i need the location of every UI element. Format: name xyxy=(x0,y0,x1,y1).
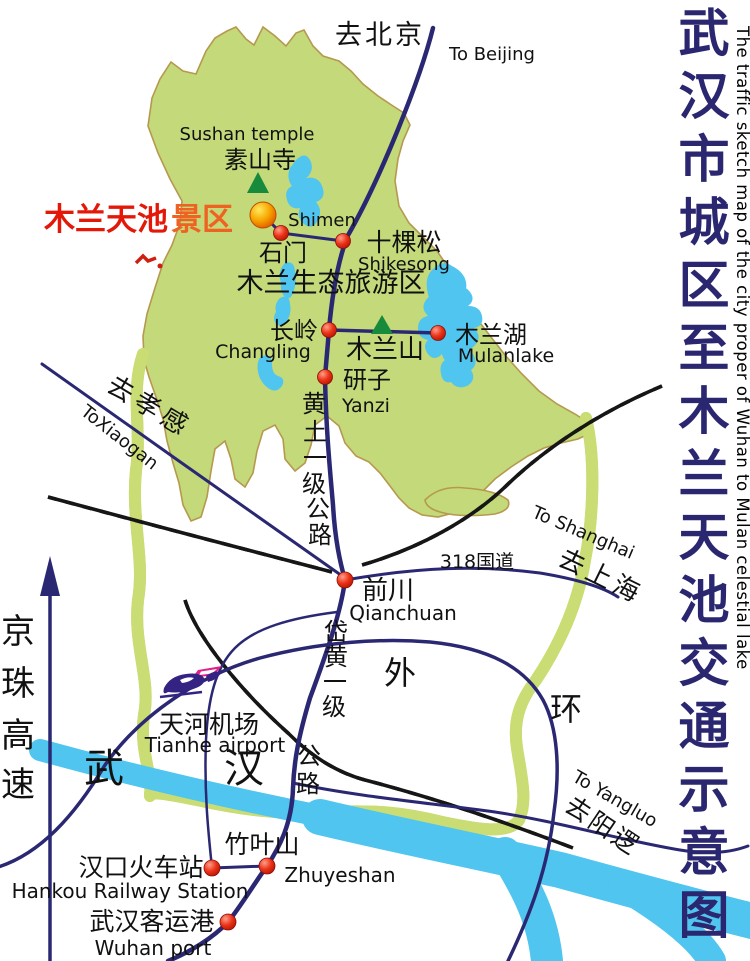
marker-wuhan-port xyxy=(220,914,236,930)
label-wuhan-port-en: Wuhan port xyxy=(95,936,212,960)
marker-shikesong xyxy=(336,234,351,249)
svg-text:黄: 黄 xyxy=(302,390,326,418)
svg-text:一: 一 xyxy=(303,444,327,472)
marker-yanzi xyxy=(318,370,333,385)
label-outer-ring-wai: 外 xyxy=(384,654,416,692)
svg-text:公: 公 xyxy=(306,495,330,523)
label-to-beijing-cn: 去北京 xyxy=(335,20,425,51)
svg-text:速: 速 xyxy=(1,765,35,805)
label-zhuyeshan-cn: 竹叶山 xyxy=(224,830,299,859)
label-hankou-station-en: Hankou Railway Station xyxy=(12,879,249,903)
label-outer-ring-huan: 环 xyxy=(550,690,582,728)
label-wuhan-port-cn: 武汉客运港 xyxy=(89,907,214,936)
label-mulanshan-cn: 木兰山 xyxy=(346,335,424,365)
svg-text:级: 级 xyxy=(322,693,346,721)
label-shimen-en: Shimen xyxy=(288,210,356,231)
svg-text:京: 京 xyxy=(1,612,35,652)
label-yanzi-en: Yanzi xyxy=(341,395,390,417)
red-mark xyxy=(136,256,163,269)
label-tianhe-airport-en: Tianhe airport xyxy=(144,733,286,757)
marker-mulanlake xyxy=(431,326,446,341)
map-title-chinese: 武汉市城区至木兰天池交通示意图 xyxy=(673,6,724,956)
label-wuhan-han: 汉 xyxy=(224,746,264,792)
label-mulan-scenic-area: 木兰天池景区 xyxy=(43,202,233,238)
marker-changling xyxy=(322,323,337,338)
svg-text:一: 一 xyxy=(323,668,347,696)
label-hankou-station-cn: 汉口火车站 xyxy=(78,853,203,882)
scenic-spot-ball-icon xyxy=(250,202,276,228)
label-mulanlake-en: Mulanlake xyxy=(458,345,554,367)
svg-text:岱: 岱 xyxy=(324,618,348,646)
label-eco-tourism-zone: 木兰生态旅游区 xyxy=(237,268,426,299)
mulan-traffic-sketch-map: 去北京 To Beijing Sushan temple 素山寺 木兰天池景区 … xyxy=(0,0,750,961)
label-shimen-cn: 石门 xyxy=(259,239,307,267)
north-arrow-icon xyxy=(40,556,60,596)
marker-qianchuan xyxy=(337,572,353,588)
svg-text:公: 公 xyxy=(297,742,321,770)
label-wuhan-wu: 武 xyxy=(84,746,124,792)
label-sushan-temple-en: Sushan temple xyxy=(180,124,315,145)
svg-text:高: 高 xyxy=(1,716,35,756)
map-title-english: The traffic sketch map of the city prope… xyxy=(734,26,750,956)
green-patch xyxy=(425,488,509,516)
svg-text:级: 级 xyxy=(302,470,326,498)
svg-text:路: 路 xyxy=(308,521,332,549)
svg-text:土: 土 xyxy=(303,418,327,446)
label-318-national-road: 318国道 xyxy=(440,551,514,573)
label-shikesong-cn: 十棵松 xyxy=(366,228,441,257)
svg-text:珠: 珠 xyxy=(1,664,35,704)
label-changling-en: Changling xyxy=(215,341,311,363)
label-sushan-temple-cn: 素山寺 xyxy=(224,146,296,174)
marker-zhuyeshan xyxy=(259,858,275,874)
label-jingzhu-expressway: 京 珠 高 速 xyxy=(1,612,35,805)
svg-text:路: 路 xyxy=(296,770,320,798)
map-canvas: 去北京 To Beijing Sushan temple 素山寺 木兰天池景区 … xyxy=(0,0,750,961)
marker-hankou-station xyxy=(204,860,220,876)
svg-text:黄: 黄 xyxy=(324,643,348,671)
label-qianchuan-en: Qianchuan xyxy=(349,601,457,625)
label-zhuyeshan-en: Zhuyeshan xyxy=(284,863,395,887)
label-yanzi-cn: 研子 xyxy=(343,366,391,394)
label-to-beijing-en: To Beijing xyxy=(448,44,535,65)
